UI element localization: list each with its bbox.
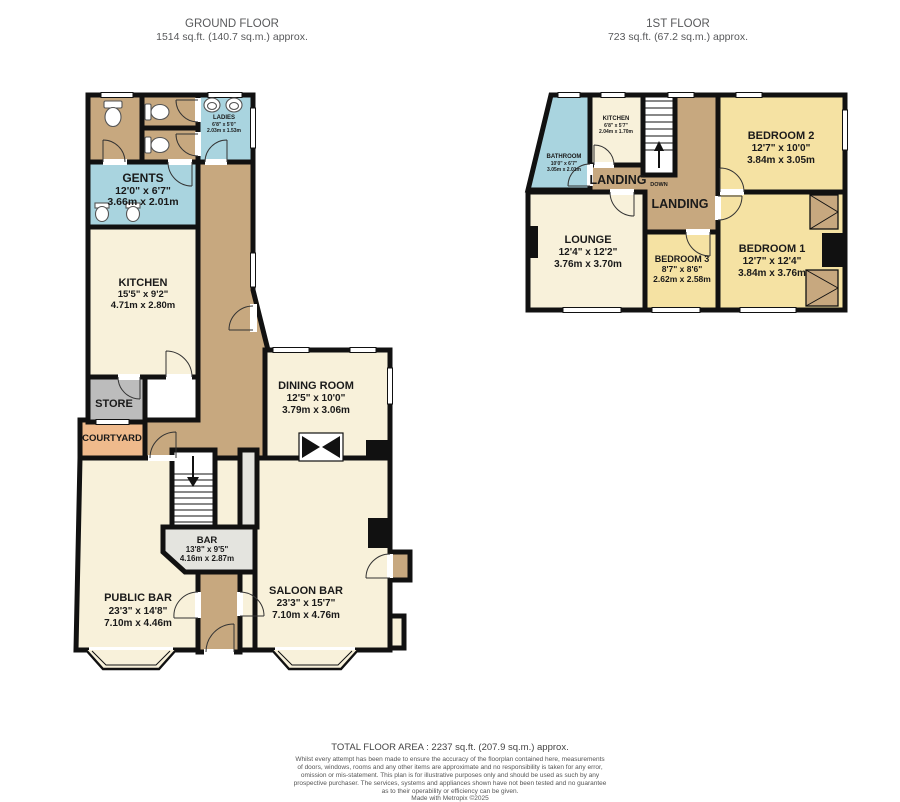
gents-label: GENTS bbox=[122, 171, 163, 185]
window bbox=[740, 308, 796, 313]
bathroom-dims-metric: 3.05m x 2.01m bbox=[547, 167, 581, 173]
floorplan-drawing: GROUND FLOOR 1514 sq.ft. (140.7 sq.m.) a… bbox=[0, 0, 900, 802]
disclaimer-line: prospective purchaser. The services, sys… bbox=[294, 780, 607, 787]
bedroom-2-label: BEDROOM 2 bbox=[748, 130, 815, 142]
credit-line: Made with Metropix ©2025 bbox=[411, 794, 489, 802]
bar-dims-metric: 4.16m x 2.87m bbox=[180, 554, 234, 563]
bedroom-2-dims-imperial: 12'7" x 10'0" bbox=[752, 143, 811, 154]
chimney-block bbox=[368, 518, 390, 548]
kitchen-ground-dims-metric: 4.71m x 2.80m bbox=[111, 300, 175, 311]
bay-window bbox=[86, 647, 176, 669]
lounge-label: LOUNGE bbox=[564, 234, 611, 246]
window bbox=[668, 93, 694, 98]
window bbox=[251, 253, 256, 287]
dining-dims-imperial: 12'5" x 10'0" bbox=[287, 393, 346, 404]
public-bar-dims-imperial: 23'3" x 14'8" bbox=[109, 606, 168, 617]
window bbox=[273, 348, 309, 353]
ground-floor-area: 1514 sq.ft. (140.7 sq.m.) approx. bbox=[156, 31, 308, 43]
window bbox=[388, 368, 393, 404]
bedroom-1-label: BEDROOM 1 bbox=[739, 243, 806, 255]
store-label: STORE bbox=[95, 398, 133, 410]
window bbox=[350, 348, 376, 353]
bedroom-3-dims-imperial: 8'7" x 8'6" bbox=[662, 264, 702, 274]
room-saloon-bar bbox=[255, 458, 390, 650]
saloon-bar-dims-metric: 7.10m x 4.76m bbox=[272, 610, 340, 621]
kitchen-first-dims-metric: 2.04m x 1.70m bbox=[599, 129, 633, 135]
window bbox=[96, 420, 129, 425]
public-bar-label: PUBLIC BAR bbox=[104, 592, 172, 604]
floorplan-page: GROUND FLOOR 1514 sq.ft. (140.7 sq.m.) a… bbox=[0, 0, 900, 802]
bay-window bbox=[272, 647, 358, 669]
wardrobe bbox=[810, 195, 838, 229]
chimney-block bbox=[366, 440, 390, 460]
toilet-icon bbox=[145, 137, 169, 153]
bar-dims-imperial: 13'8" x 9'5" bbox=[186, 545, 229, 554]
window bbox=[558, 93, 580, 98]
bedroom-1-dims-imperial: 12'7" x 12'4" bbox=[743, 256, 802, 267]
bedroom-3-dims-metric: 2.62m x 2.58m bbox=[653, 274, 711, 284]
window bbox=[736, 93, 762, 98]
fireplace-icon bbox=[299, 433, 343, 461]
total-floor-area: TOTAL FLOOR AREA : 2237 sq.ft. (207.9 sq… bbox=[331, 742, 568, 753]
courtyard-label: COURTYARD bbox=[82, 433, 142, 444]
saloon-step bbox=[390, 616, 404, 648]
public-bar-dims-metric: 7.10m x 4.46m bbox=[104, 618, 172, 629]
bar-service-strip bbox=[240, 450, 257, 527]
first-floor-area: 723 sq.ft. (67.2 sq.m.) approx. bbox=[608, 31, 748, 43]
ladies-label: LADIES bbox=[213, 115, 235, 121]
ground-floor-plan: GENTS 12'0" x 6'7" 3.66m x 2.01m LADIES … bbox=[76, 93, 410, 670]
room-bathroom bbox=[528, 95, 590, 190]
window bbox=[652, 308, 700, 313]
window bbox=[843, 110, 848, 150]
kitchen-ground-label: KITCHEN bbox=[119, 277, 168, 289]
bathroom-label: BATHROOM bbox=[547, 154, 582, 160]
window bbox=[563, 308, 621, 313]
disclaimer-line: of doors, windows, rooms and any other i… bbox=[297, 764, 602, 771]
first-floor-title: 1ST FLOOR bbox=[646, 18, 710, 30]
ground-floor-title: GROUND FLOOR bbox=[185, 18, 279, 30]
sink-icon bbox=[226, 98, 242, 112]
landing-label-2: LANDING bbox=[652, 197, 709, 211]
window bbox=[101, 93, 133, 98]
bedroom-3-label: BEDROOM 3 bbox=[655, 254, 710, 264]
window bbox=[251, 108, 256, 148]
chimney-block bbox=[528, 226, 538, 258]
stairs-down-label: DOWN bbox=[650, 182, 667, 188]
toilet-icon bbox=[145, 104, 169, 120]
bedroom-1-dims-metric: 3.84m x 3.76m bbox=[738, 268, 806, 279]
kitchen-ground-dims-imperial: 15'5" x 9'2" bbox=[118, 289, 169, 300]
bedroom-2-dims-metric: 3.84m x 3.05m bbox=[747, 155, 815, 166]
gents-dims-metric: 3.66m x 2.01m bbox=[107, 196, 178, 208]
dining-label: DINING ROOM bbox=[278, 380, 354, 392]
disclaimer-line: Whilst every attempt has been made to en… bbox=[295, 756, 605, 763]
toilet-icon bbox=[104, 101, 122, 127]
disclaimer-line: as to their operability or efficiency ca… bbox=[382, 788, 519, 795]
window bbox=[601, 93, 625, 98]
dining-dims-metric: 3.79m x 3.06m bbox=[282, 405, 350, 416]
landing-label-1: LANDING bbox=[590, 173, 647, 187]
ladies-dims-metric: 2.03m x 1.53m bbox=[207, 128, 241, 134]
window bbox=[208, 93, 242, 98]
wardrobe bbox=[806, 270, 838, 306]
lounge-dims-imperial: 12'4" x 12'2" bbox=[559, 247, 618, 258]
saloon-bar-dims-imperial: 23'3" x 15'7" bbox=[277, 598, 336, 609]
saloon-bar-label: SALOON BAR bbox=[269, 585, 343, 597]
sink-icon bbox=[204, 98, 220, 112]
footer: TOTAL FLOOR AREA : 2237 sq.ft. (207.9 sq… bbox=[294, 742, 607, 802]
first-floor-plan: BATHROOM 10'0" x 6'7" 3.05m x 2.01m KITC… bbox=[528, 93, 848, 313]
disclaimer-line: omission or mis-statement. This plan is … bbox=[301, 772, 600, 779]
chimney-block bbox=[822, 233, 845, 267]
lounge-dims-metric: 3.76m x 3.70m bbox=[554, 259, 622, 270]
kitchen-first-label: KITCHEN bbox=[603, 116, 630, 122]
